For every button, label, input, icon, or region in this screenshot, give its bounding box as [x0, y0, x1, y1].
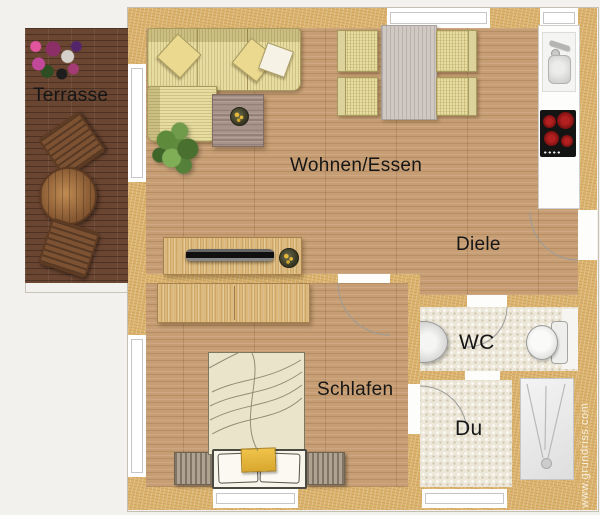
dining-table	[381, 25, 437, 120]
dining-chair	[337, 30, 378, 72]
wall-hall-wc	[420, 295, 467, 307]
wall-living-bedroom	[146, 274, 338, 283]
wardrobe	[157, 283, 310, 323]
wall-top	[128, 8, 597, 28]
wall-wc-shower	[420, 371, 465, 380]
window-living	[128, 64, 146, 182]
nightstand	[174, 452, 214, 485]
room-label-schlafen: Schlafen	[317, 379, 393, 401]
cooktop	[540, 110, 576, 157]
watermark: www.grundriss.com	[579, 402, 591, 508]
wall-bedroom-bath	[408, 432, 420, 487]
window-behind-bed	[213, 489, 298, 508]
wc-shower-opening	[465, 371, 500, 380]
bedroom-door-opening	[338, 274, 390, 283]
toilet	[526, 325, 558, 360]
tv	[186, 249, 274, 261]
room-label-du: Du	[455, 417, 482, 441]
sink-basin	[548, 55, 571, 84]
burner-icon	[561, 135, 573, 147]
window-shower-room	[422, 489, 507, 508]
shower-tray	[520, 378, 574, 480]
nightstand	[306, 452, 345, 485]
dining-chair	[436, 30, 477, 72]
decor-bowl	[230, 107, 249, 126]
room-label-wc: WC	[459, 331, 495, 355]
plant	[150, 116, 204, 176]
wall-bedroom-bath	[408, 274, 420, 386]
kitchen-sink	[542, 32, 576, 92]
wall-bottom	[128, 487, 597, 510]
wall-hall-wc	[507, 295, 578, 307]
dining-chair	[436, 77, 477, 116]
burner-icon	[543, 115, 556, 128]
burner-icon	[557, 112, 574, 129]
flower-bed	[27, 34, 85, 84]
wall-living-bedroom	[390, 274, 408, 283]
room-label-terrasse: Terrasse	[33, 85, 108, 107]
room-label-diele: Diele	[456, 234, 501, 256]
floor-plan: Terrasse Wohnen/Essen Diele Schlafen WC …	[0, 0, 600, 515]
window-bedroom	[128, 335, 146, 477]
dining-chair	[337, 77, 378, 116]
decor-bowl	[279, 248, 299, 268]
room-label-wohnen-essen: Wohnen/Essen	[290, 155, 422, 177]
bed-duvet	[208, 352, 305, 455]
entrance-door-opening	[578, 210, 597, 260]
bed-throw	[241, 447, 277, 472]
terrace-round-table	[39, 167, 97, 225]
burner-icon	[544, 131, 559, 146]
